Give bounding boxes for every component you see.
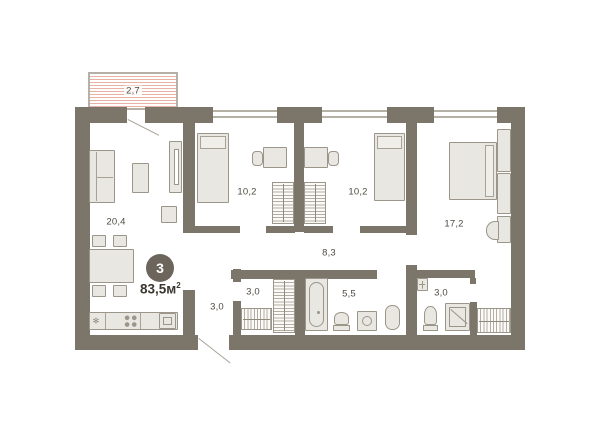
washing-machine xyxy=(357,311,377,331)
wall xyxy=(470,302,477,335)
desk xyxy=(304,147,328,168)
wall xyxy=(233,269,241,282)
dining-chair xyxy=(92,285,106,297)
wardrobe xyxy=(273,279,295,333)
rooms-count-badge: 3 xyxy=(146,254,174,282)
wall xyxy=(183,118,195,230)
wall xyxy=(229,335,525,350)
single-bed xyxy=(374,133,405,201)
pillow xyxy=(485,145,494,197)
toilet-tank xyxy=(423,325,438,331)
wall xyxy=(233,301,241,335)
wall xyxy=(231,270,377,279)
toilet xyxy=(333,312,350,331)
wall xyxy=(145,107,213,123)
entrance-door-swing xyxy=(198,338,230,363)
floor-plan: 2,7 ✻ xyxy=(0,0,600,435)
wall xyxy=(470,278,476,284)
wardrobe xyxy=(477,308,511,333)
counter-divider xyxy=(105,313,106,329)
bathtub xyxy=(305,278,328,331)
room-label-bedroom1: 10,2 xyxy=(237,187,256,198)
window xyxy=(322,110,387,118)
wardrobe xyxy=(304,182,326,224)
dining-table xyxy=(89,249,134,283)
dining-chair xyxy=(113,235,127,247)
window xyxy=(434,110,497,118)
total-area-label: 83,5м2 xyxy=(140,281,181,297)
total-area-unit: м xyxy=(166,282,176,297)
room-label-hallway: 8,3 xyxy=(322,248,336,259)
double-bed xyxy=(449,142,497,200)
wall xyxy=(511,107,525,350)
counter-divider xyxy=(140,313,141,329)
wall xyxy=(406,118,417,235)
washbasin xyxy=(417,278,428,291)
balcony: 2,7 xyxy=(88,72,178,110)
water-heater xyxy=(385,305,400,330)
armchair xyxy=(486,221,499,240)
desk-chair xyxy=(328,151,339,166)
sofa xyxy=(89,150,115,203)
room-label-ensuite: 3,0 xyxy=(434,288,448,299)
single-bed xyxy=(197,133,229,203)
toilet xyxy=(423,306,438,331)
nightstand-column xyxy=(497,129,511,172)
total-area-exponent: 2 xyxy=(176,281,180,290)
wardrobe xyxy=(272,182,294,224)
room-label-corridor: 3,0 xyxy=(210,302,224,313)
pouf xyxy=(161,206,177,223)
room-label-master: 17,2 xyxy=(444,219,463,230)
window xyxy=(213,110,277,118)
toilet-tank xyxy=(333,325,350,331)
stove xyxy=(122,313,139,329)
toilet-bowl xyxy=(334,312,349,325)
kitchen-sink xyxy=(159,313,176,329)
wall xyxy=(406,265,417,335)
snowflake-symbol: ✻ xyxy=(93,317,100,326)
pillow xyxy=(200,136,226,149)
desk xyxy=(263,147,287,168)
room-label-bedroom2: 10,2 xyxy=(348,187,367,198)
desk-chair xyxy=(252,151,263,166)
wall xyxy=(75,335,198,350)
toilet-bowl xyxy=(424,306,437,325)
wall xyxy=(304,226,333,233)
nightstand-column xyxy=(497,173,511,214)
wall xyxy=(497,107,525,123)
room-label-living: 20,4 xyxy=(106,217,125,228)
shower-cabin xyxy=(445,303,470,331)
dining-chair xyxy=(113,285,127,297)
wall xyxy=(75,107,127,123)
wall xyxy=(75,107,90,350)
dining-chair xyxy=(92,235,106,247)
wall xyxy=(294,118,304,232)
tv-stand xyxy=(169,141,182,193)
coat-rack xyxy=(241,308,272,330)
pillow xyxy=(377,136,402,149)
room-label-bathroom: 5,5 xyxy=(342,289,356,300)
rooms-count: 3 xyxy=(156,260,164,276)
wall xyxy=(295,279,305,335)
balcony-area-label: 2,7 xyxy=(124,86,142,97)
wall xyxy=(417,270,475,278)
cabinet xyxy=(497,216,511,243)
coffee-table xyxy=(132,163,149,193)
wall xyxy=(183,290,195,350)
room-label-closet: 3,0 xyxy=(246,287,260,298)
wall xyxy=(266,226,295,233)
total-area-value: 83,5 xyxy=(140,282,166,297)
wall xyxy=(183,226,240,233)
